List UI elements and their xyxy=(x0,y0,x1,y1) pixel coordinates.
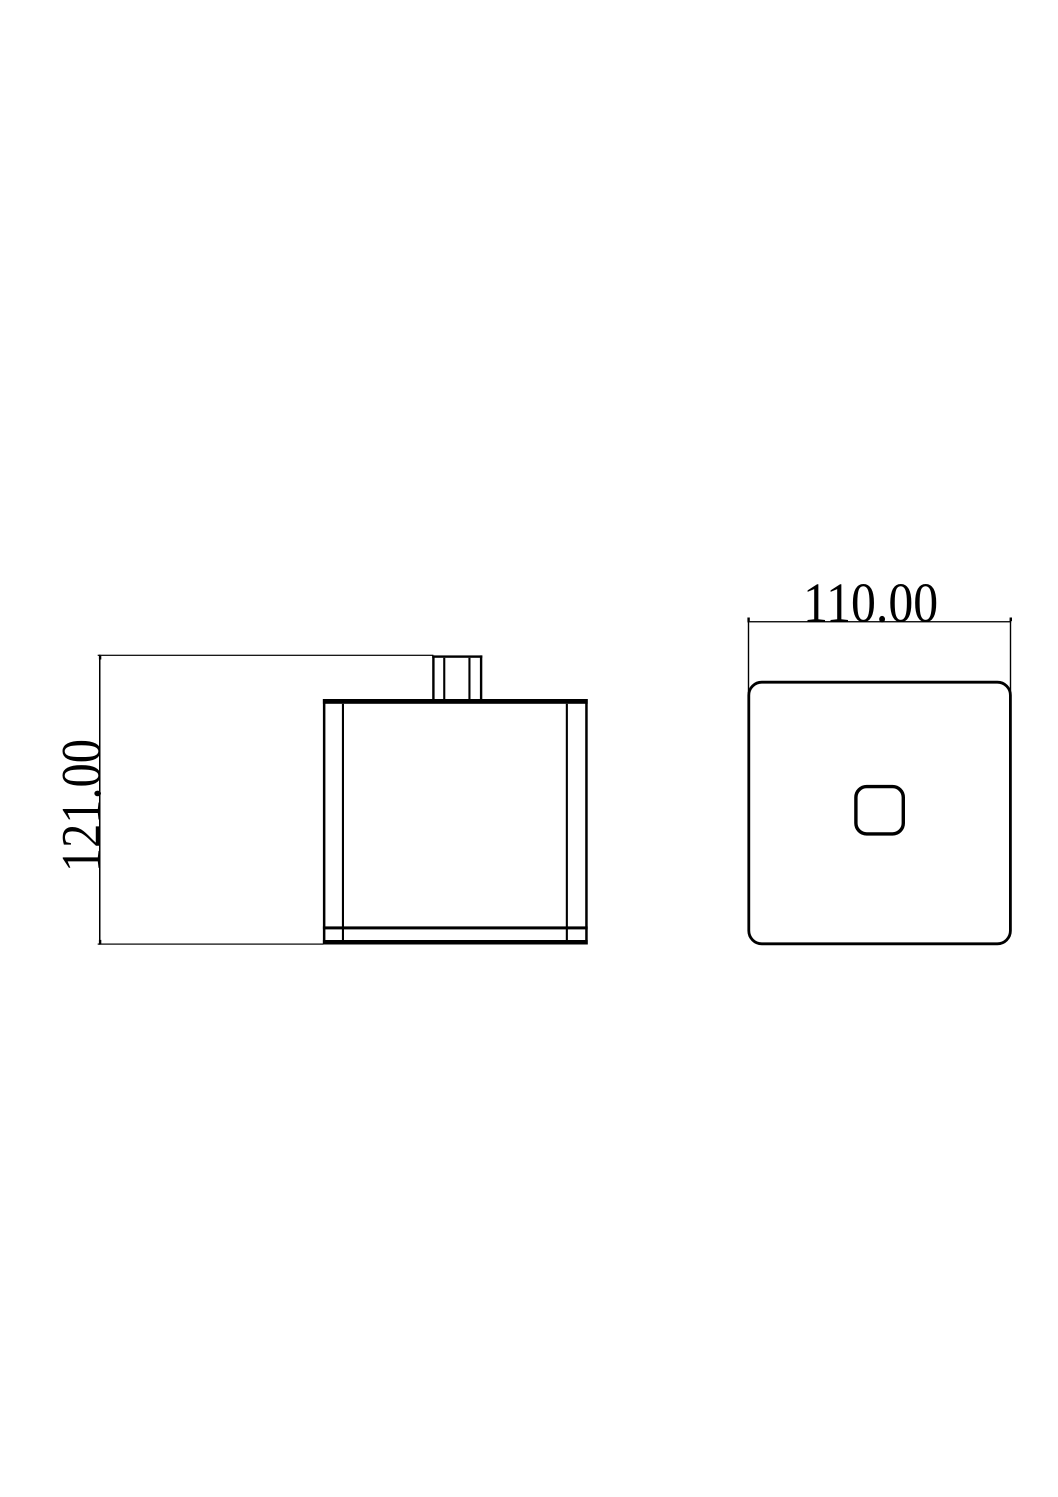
svg-text:121.00: 121.00 xyxy=(51,739,113,872)
svg-text:110.00: 110.00 xyxy=(803,572,938,634)
